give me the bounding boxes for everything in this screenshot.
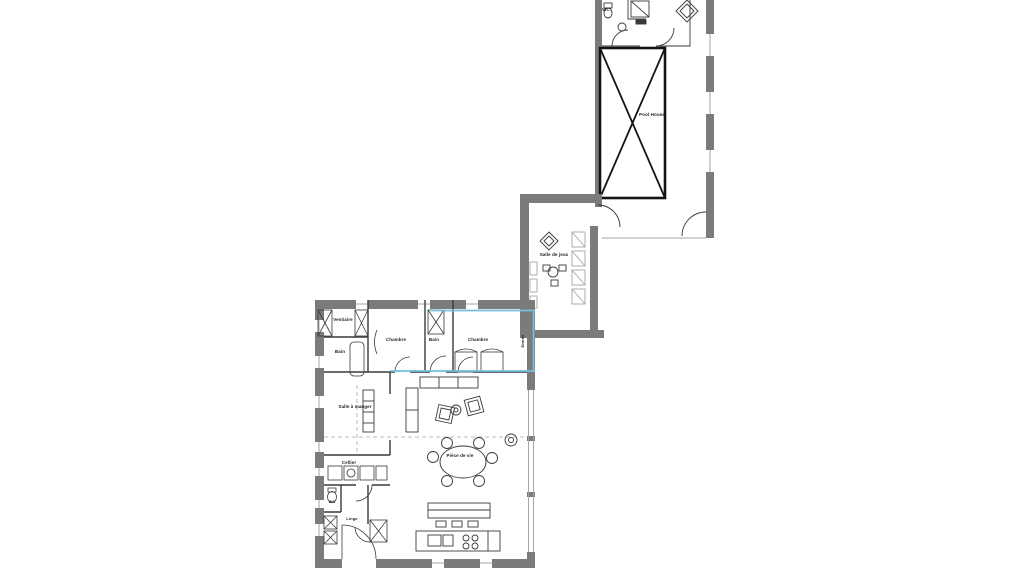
floor-plan-drawing	[0, 0, 1024, 576]
bedroom-fixtures	[318, 310, 503, 376]
dining-fixtures	[324, 385, 527, 452]
pool-bathroom	[602, 0, 690, 46]
diamond-fixture	[676, 0, 698, 22]
cellier-appliances	[328, 466, 387, 480]
kitchen	[416, 503, 500, 551]
living-room-furniture	[406, 377, 517, 487]
pool-house-wing	[595, 0, 714, 238]
pool	[600, 48, 665, 198]
partitions	[324, 300, 527, 524]
wc-fixtures	[324, 488, 387, 544]
main-house	[315, 300, 535, 568]
floor-plan-canvas: WCPool HouseSalle de jeuxVestiaireChambr…	[0, 0, 1024, 576]
